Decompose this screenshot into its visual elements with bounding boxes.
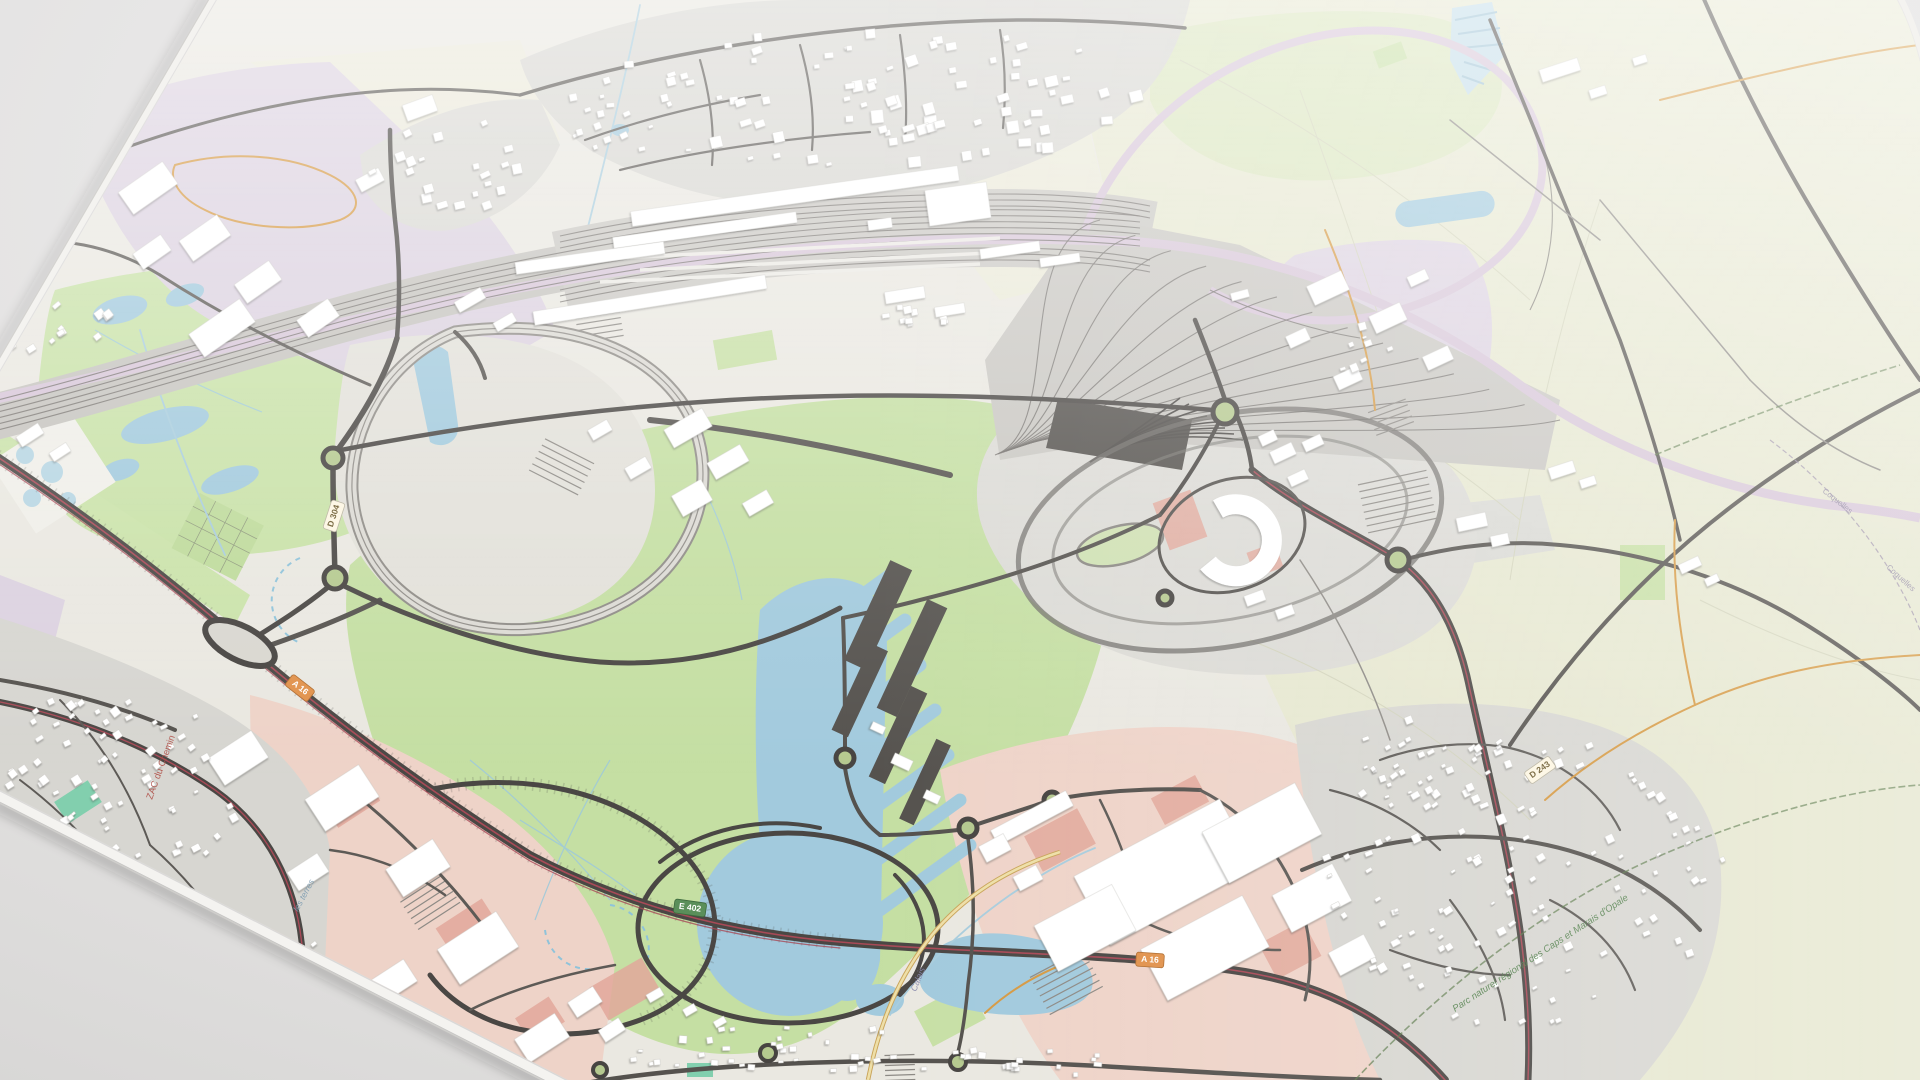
building [187,951,196,959]
building [275,987,280,992]
building [175,1056,187,1068]
building [138,1061,147,1070]
building [123,903,131,911]
building [122,887,127,892]
building [266,1035,276,1044]
map-3d-scene[interactable]: Parc naturel régional des Caps et Marais… [0,0,1920,1080]
building [181,973,188,980]
building [92,882,103,892]
building [197,1073,202,1077]
distance-haze-right [0,0,1920,1080]
building [103,991,115,1003]
building [2,857,13,867]
building [120,993,126,999]
building [245,963,255,973]
building [347,996,353,1002]
map-3d-render[interactable]: Parc naturel régional des Caps et Marais… [0,0,1920,1080]
building [225,971,234,980]
building [145,919,155,929]
building [113,967,122,974]
building [61,901,69,908]
building [233,1062,239,1067]
building [219,1016,227,1023]
building [229,978,238,987]
building [89,876,98,885]
building [134,886,143,894]
building [190,1016,197,1023]
building [233,999,239,1005]
building [163,960,173,970]
building [325,1020,335,1030]
building [95,1007,101,1012]
building [12,858,22,867]
building [213,962,225,974]
map-sheet[interactable]: Parc naturel régional des Caps et Marais… [0,0,1920,1080]
building [151,951,160,960]
building [252,994,259,1000]
building [226,1062,232,1068]
building [47,883,58,895]
building [100,1009,109,1017]
building [97,966,105,973]
building [280,981,290,991]
building [106,1036,115,1044]
building [222,1003,228,1009]
building [157,1015,167,1025]
building [274,958,286,970]
building [291,969,297,975]
building [267,995,275,1003]
building [58,858,66,866]
building [129,897,139,907]
building [140,898,150,906]
building [238,994,247,1002]
building [184,919,194,928]
building [213,943,219,949]
building [135,923,140,928]
building [141,1017,151,1026]
building [92,1008,102,1017]
building [300,1008,312,1019]
building [271,1063,277,1069]
building [266,1060,275,1069]
building [77,1040,86,1047]
building [116,1001,124,1008]
building [92,996,98,1002]
building [92,1000,104,1012]
building [100,1032,107,1039]
building [278,1053,283,1057]
building [288,1039,296,1046]
building [144,998,154,1008]
